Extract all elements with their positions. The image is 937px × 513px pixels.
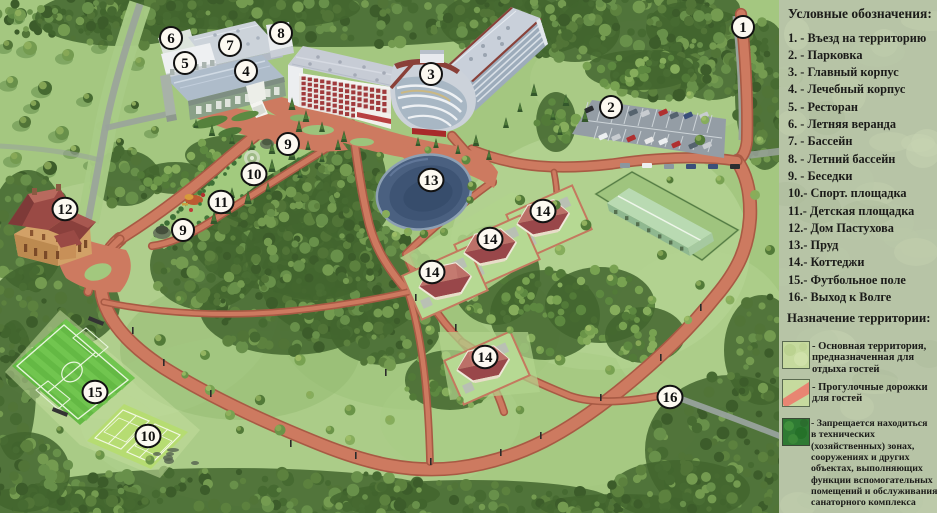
svg-text:15: 15 <box>88 385 103 401</box>
svg-text:11: 11 <box>214 195 228 211</box>
svg-text:10: 10 <box>247 167 262 183</box>
svg-text:9: 9 <box>179 223 187 239</box>
svg-text:10: 10 <box>141 429 156 445</box>
svg-text:5: 5 <box>181 56 189 72</box>
svg-text:12: 12 <box>58 202 73 218</box>
svg-text:14: 14 <box>478 350 494 366</box>
svg-text:4: 4 <box>242 64 250 80</box>
svg-text:7: 7 <box>226 38 234 54</box>
svg-text:16: 16 <box>663 390 679 406</box>
svg-text:2: 2 <box>607 100 615 116</box>
svg-text:3: 3 <box>427 67 435 83</box>
svg-text:6: 6 <box>167 31 175 47</box>
svg-text:1: 1 <box>739 20 747 36</box>
svg-text:14: 14 <box>483 232 499 248</box>
svg-text:14: 14 <box>425 265 441 281</box>
svg-text:13: 13 <box>424 173 439 189</box>
svg-text:9: 9 <box>284 137 292 153</box>
svg-text:8: 8 <box>277 26 285 42</box>
svg-text:14: 14 <box>536 204 552 220</box>
